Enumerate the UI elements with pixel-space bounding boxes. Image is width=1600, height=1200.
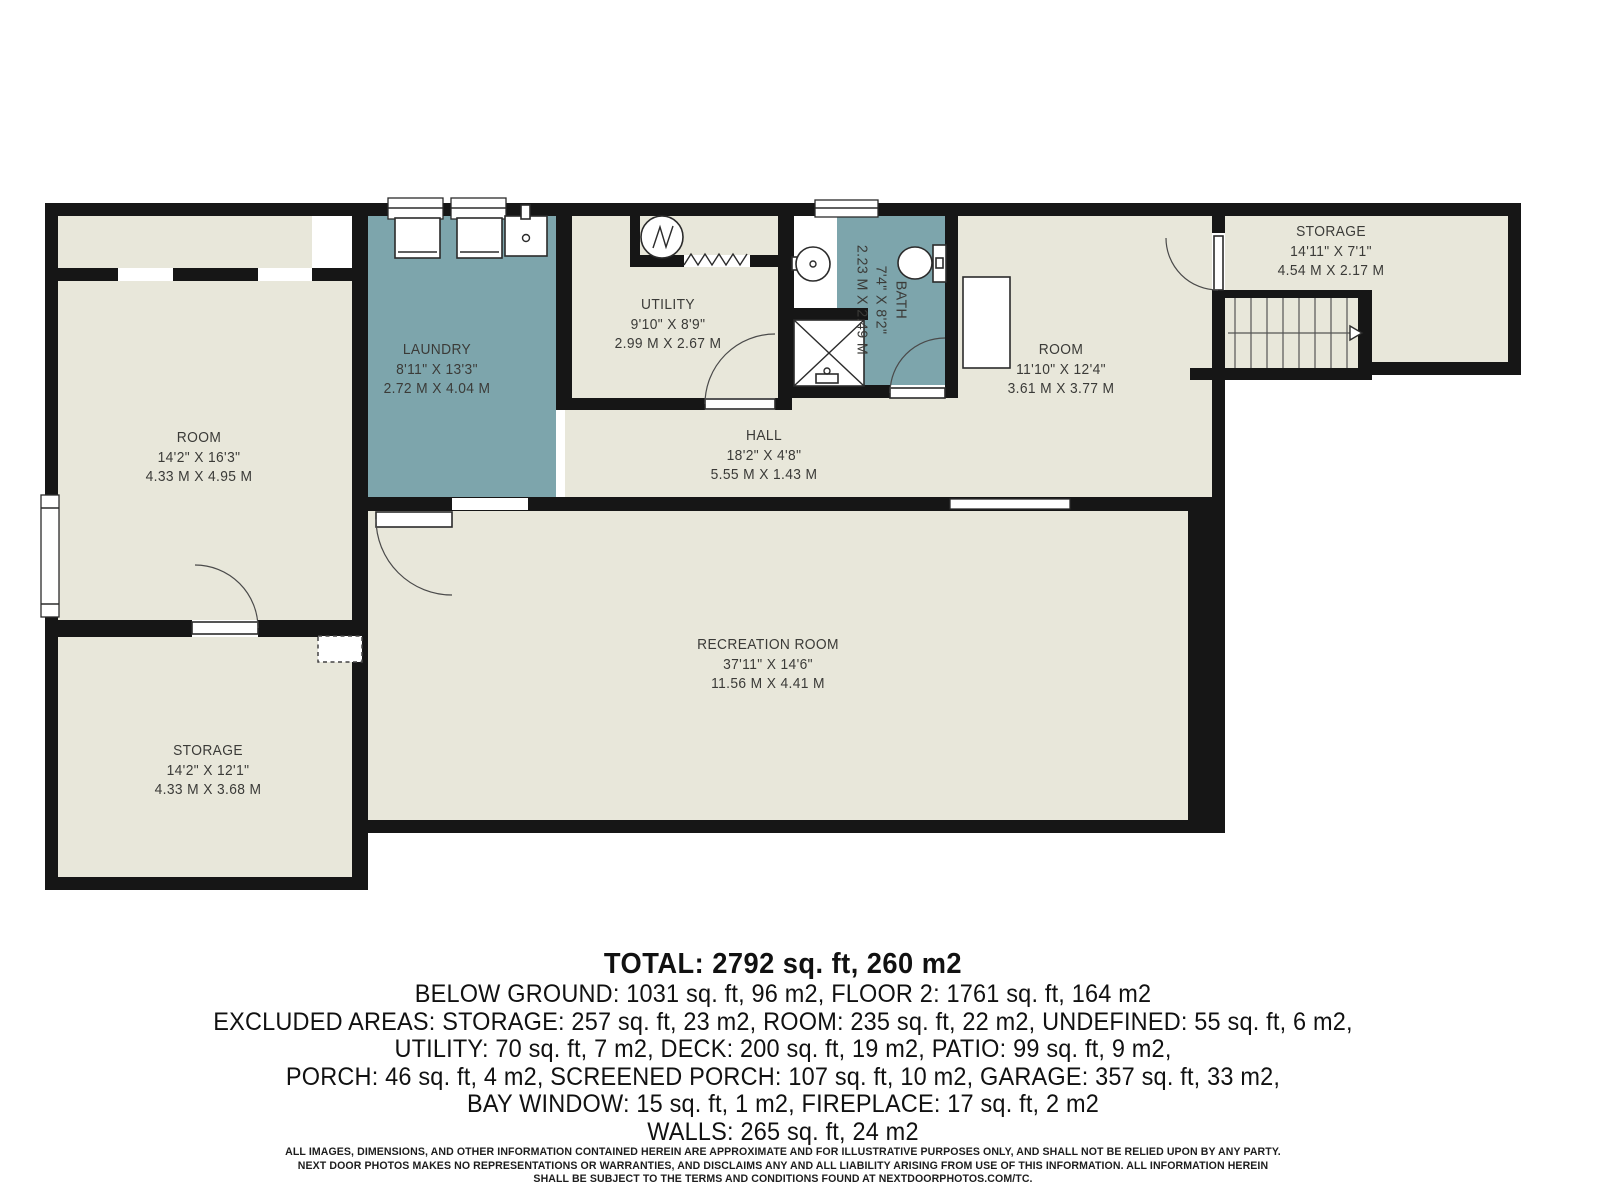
- total-area: TOTAL: 2792 sq. ft, 260 m2: [47, 948, 1519, 981]
- summary-line-excluded: EXCLUDED AREAS: STORAGE: 257 sq. ft, 23 …: [47, 1009, 1519, 1037]
- window-laundry-1: [388, 198, 443, 219]
- room-label-room-left: ROOM 14'2" X 16'3" 4.33 M X 4.95 M: [146, 428, 253, 487]
- room-area-hall: [565, 398, 1212, 497]
- room-dims-metric: 2.72 M X 4.04 M: [384, 379, 491, 399]
- room-dims-imperial: 11'10" X 12'4": [1008, 360, 1115, 380]
- room-name: UTILITY: [615, 295, 722, 315]
- window-room-right-bottom: [950, 499, 1070, 509]
- room-dims-metric: 2.23 M X 2.49 M: [852, 245, 872, 355]
- room-name: ROOM: [1008, 340, 1115, 360]
- furnace-icon: [641, 216, 683, 258]
- summary-line-below-ground: BELOW GROUND: 1031 sq. ft, 96 m2, FLOOR …: [47, 981, 1519, 1009]
- room-label-recreation: RECREATION ROOM 37'11" X 14'6" 11.56 M X…: [697, 635, 839, 694]
- room-name: STORAGE: [1278, 222, 1385, 242]
- dryer-icon: [457, 218, 502, 258]
- summary-line-walls: WALLS: 265 sq. ft, 24 m2: [47, 1119, 1519, 1147]
- room-dims-metric: 4.54 M X 2.17 M: [1278, 261, 1385, 281]
- room-dims-metric: 3.61 M X 3.77 M: [1008, 379, 1115, 399]
- room-name: HALL: [711, 426, 818, 446]
- crawl-space-opening-icon: [318, 636, 362, 662]
- summary-line-utility-deck-patio: UTILITY: 70 sq. ft, 7 m2, DECK: 200 sq. …: [47, 1036, 1519, 1064]
- area-summary: TOTAL: 2792 sq. ft, 260 m2 BELOW GROUND:…: [47, 948, 1519, 1146]
- room-label-storage-top: STORAGE 14'11" X 7'1" 4.54 M X 2.17 M: [1278, 222, 1385, 281]
- room-dims-metric: 5.55 M X 1.43 M: [711, 465, 818, 485]
- room-label-bath: BATH 7'4" X 8'2" 2.23 M X 2.49 M: [852, 245, 911, 355]
- disclaimer-line-2: NEXT DOOR PHOTOS MAKES NO REPRESENTATION…: [31, 1160, 1534, 1174]
- summary-line-baywindow-fireplace: BAY WINDOW: 15 sq. ft, 1 m2, FIREPLACE: …: [47, 1091, 1519, 1119]
- room-dims-imperial: 14'11" X 7'1": [1278, 242, 1385, 262]
- room-dims-metric: 2.99 M X 2.67 M: [615, 334, 722, 354]
- room-name: RECREATION ROOM: [697, 635, 839, 655]
- room-label-storage-bottom: STORAGE 14'2" X 12'1" 4.33 M X 3.68 M: [155, 741, 262, 800]
- room-dims-imperial: 7'4" X 8'2": [871, 245, 891, 355]
- room-dims-metric: 4.33 M X 4.95 M: [146, 467, 253, 487]
- room-area-top-strip: [57, 216, 352, 268]
- disclaimer-line-3: SHALL BE SUBJECT TO THE TERMS AND CONDIT…: [31, 1173, 1534, 1187]
- room-dims-metric: 11.56 M X 4.41 M: [697, 674, 839, 694]
- room-name: BATH: [891, 245, 911, 355]
- room-label-laundry: LAUNDRY 8'11" X 13'3" 2.72 M X 4.04 M: [384, 340, 491, 399]
- disclaimer: ALL IMAGES, DIMENSIONS, AND OTHER INFORM…: [31, 1146, 1534, 1187]
- window-left-wall: [41, 495, 59, 617]
- room-name: STORAGE: [155, 741, 262, 761]
- room-dims-imperial: 8'11" X 13'3": [384, 360, 491, 380]
- window-bath: [815, 200, 878, 217]
- room-label-hall: HALL 18'2" X 4'8" 5.55 M X 1.43 M: [711, 426, 818, 485]
- room-dims-metric: 4.33 M X 3.68 M: [155, 780, 262, 800]
- room-dims-imperial: 14'2" X 16'3": [146, 448, 253, 468]
- summary-line-porch-garage: PORCH: 46 sq. ft, 4 m2, SCREENED PORCH: …: [47, 1064, 1519, 1092]
- room-dims-imperial: 9'10" X 8'9": [615, 315, 722, 335]
- room-name: ROOM: [146, 428, 253, 448]
- room-name: LAUNDRY: [384, 340, 491, 360]
- room-dims-imperial: 14'2" X 12'1": [155, 761, 262, 781]
- window-laundry-2: [451, 198, 506, 219]
- disclaimer-line-1: ALL IMAGES, DIMENSIONS, AND OTHER INFORM…: [31, 1146, 1534, 1160]
- room-dims-imperial: 37'11" X 14'6": [697, 655, 839, 675]
- floor-plan-page: ROOM 14'2" X 16'3" 4.33 M X 4.95 M LAUND…: [0, 0, 1600, 1200]
- closet-icon: [963, 277, 1010, 368]
- room-label-room-right: ROOM 11'10" X 12'4" 3.61 M X 3.77 M: [1008, 340, 1115, 399]
- room-dims-imperial: 18'2" X 4'8": [711, 446, 818, 466]
- washer-icon: [395, 218, 440, 258]
- room-label-utility: UTILITY 9'10" X 8'9" 2.99 M X 2.67 M: [615, 295, 722, 354]
